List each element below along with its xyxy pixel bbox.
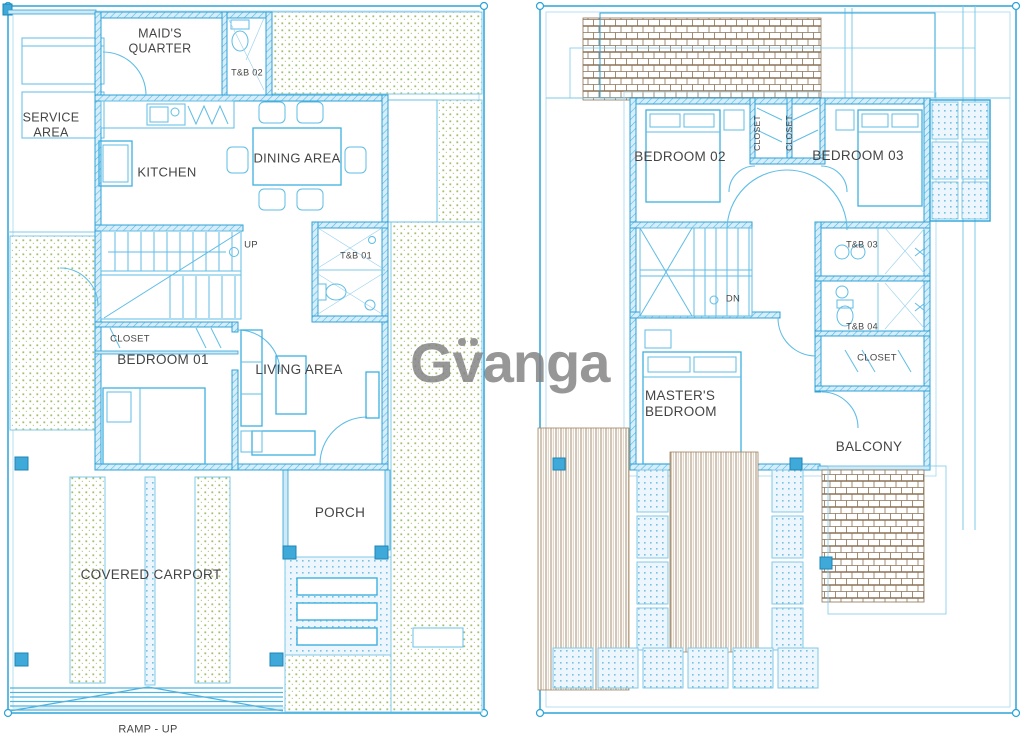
label-masters-bedroom: MASTER'S BEDROOM (645, 388, 757, 420)
watermark-umlaut-dot (470, 338, 478, 346)
deck-post (790, 458, 802, 470)
planter-box (388, 100, 437, 222)
bed-01-icon (103, 388, 205, 464)
toilet-02-icon (228, 18, 264, 90)
roof-deck-top (570, 13, 975, 100)
label-service-area: SERVICE AREA (13, 110, 89, 140)
label-dining-area: DINING AREA (253, 150, 340, 165)
toilet-01-icon (318, 228, 382, 314)
watermark-text: Gvanga (410, 331, 609, 394)
sofa-icon (252, 431, 315, 455)
label-closet-a: CLOSET (752, 115, 762, 151)
refrigerator-icon (99, 141, 132, 186)
label-kitchen: KITCHEN (137, 164, 196, 179)
watermark: Gvanga (410, 330, 609, 395)
watermark-umlaut-dot (458, 338, 466, 346)
label-tb02: T&B 02 (231, 68, 263, 79)
deck-post (553, 458, 565, 470)
floorplan-page: Gvanga SERVICE AREA MAID'S QUARTER T&B 0… (0, 0, 1024, 739)
label-balcony: BALCONY (836, 439, 903, 455)
stairs-up-icon (101, 231, 241, 319)
label-bedroom02: BEDROOM 02 (634, 149, 726, 165)
label-ramp-up: RAMP - UP (118, 724, 177, 737)
label-bedroom01: BEDROOM 01 (117, 352, 209, 368)
porch-step (297, 603, 377, 620)
label-covered-carport: COVERED CARPORT (81, 567, 222, 583)
trellis-grid-deck (930, 100, 990, 221)
living-furniture-icons (241, 330, 379, 455)
label-closet-b: CLOSET (784, 115, 794, 151)
sofa-icon (241, 330, 262, 426)
label-closet-c: CLOSET (857, 352, 897, 363)
paver (413, 628, 463, 647)
label-porch: PORCH (315, 505, 365, 521)
label-tb04: T&B 04 (846, 322, 878, 333)
tv-console-icon (366, 372, 379, 418)
label-tb01: T&B 01 (340, 251, 372, 262)
label-bedroom03: BEDROOM 03 (812, 148, 904, 164)
label-living-area: LIVING AREA (255, 362, 342, 378)
deck-post (820, 557, 832, 569)
label-closet-ground: CLOSET (110, 333, 150, 344)
porch-post (283, 546, 296, 559)
label-tb03: T&B 03 (846, 240, 878, 251)
porch-step (297, 578, 377, 595)
laundry-unit-icon (22, 38, 104, 84)
porch-step (297, 628, 377, 645)
porch-post (375, 546, 388, 559)
label-up: UP (244, 239, 258, 250)
ramp-icon (10, 687, 283, 711)
label-dn: DN (726, 293, 740, 304)
label-maids-quarter: MAID'S QUARTER (117, 26, 203, 56)
toilet-03-icon (835, 228, 925, 274)
